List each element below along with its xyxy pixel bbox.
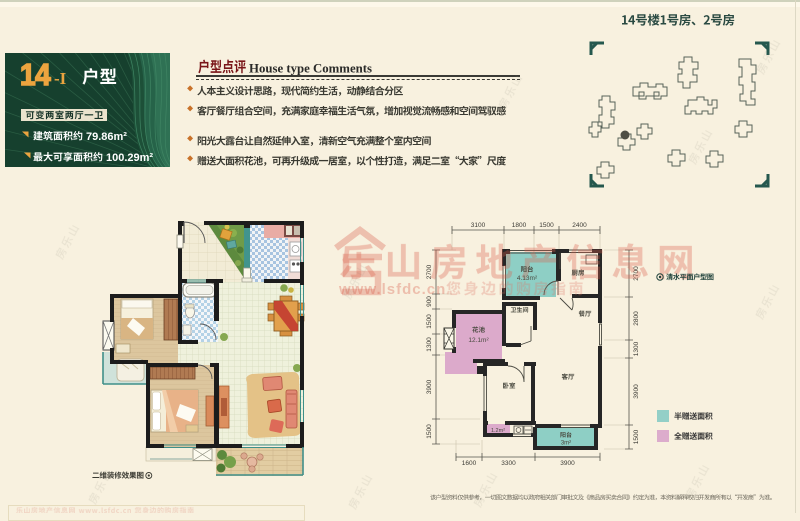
svg-text:www.lsfdc.cn: www.lsfdc.cn (338, 281, 446, 298)
svg-text:79.86m²: 79.86m² (86, 131, 127, 143)
svg-text:14: 14 (20, 58, 51, 92)
svg-text:100.29m²: 100.29m² (106, 152, 153, 164)
svg-text:12.1m²: 12.1m² (468, 337, 489, 344)
svg-text:1.2m²: 1.2m² (491, 428, 505, 434)
svg-text:-I: -I (54, 69, 67, 88)
svg-text:House type Comments: House type Comments (249, 62, 372, 76)
svg-text:4.13m²: 4.13m² (517, 275, 538, 282)
svg-text:3m²: 3m² (561, 441, 571, 447)
